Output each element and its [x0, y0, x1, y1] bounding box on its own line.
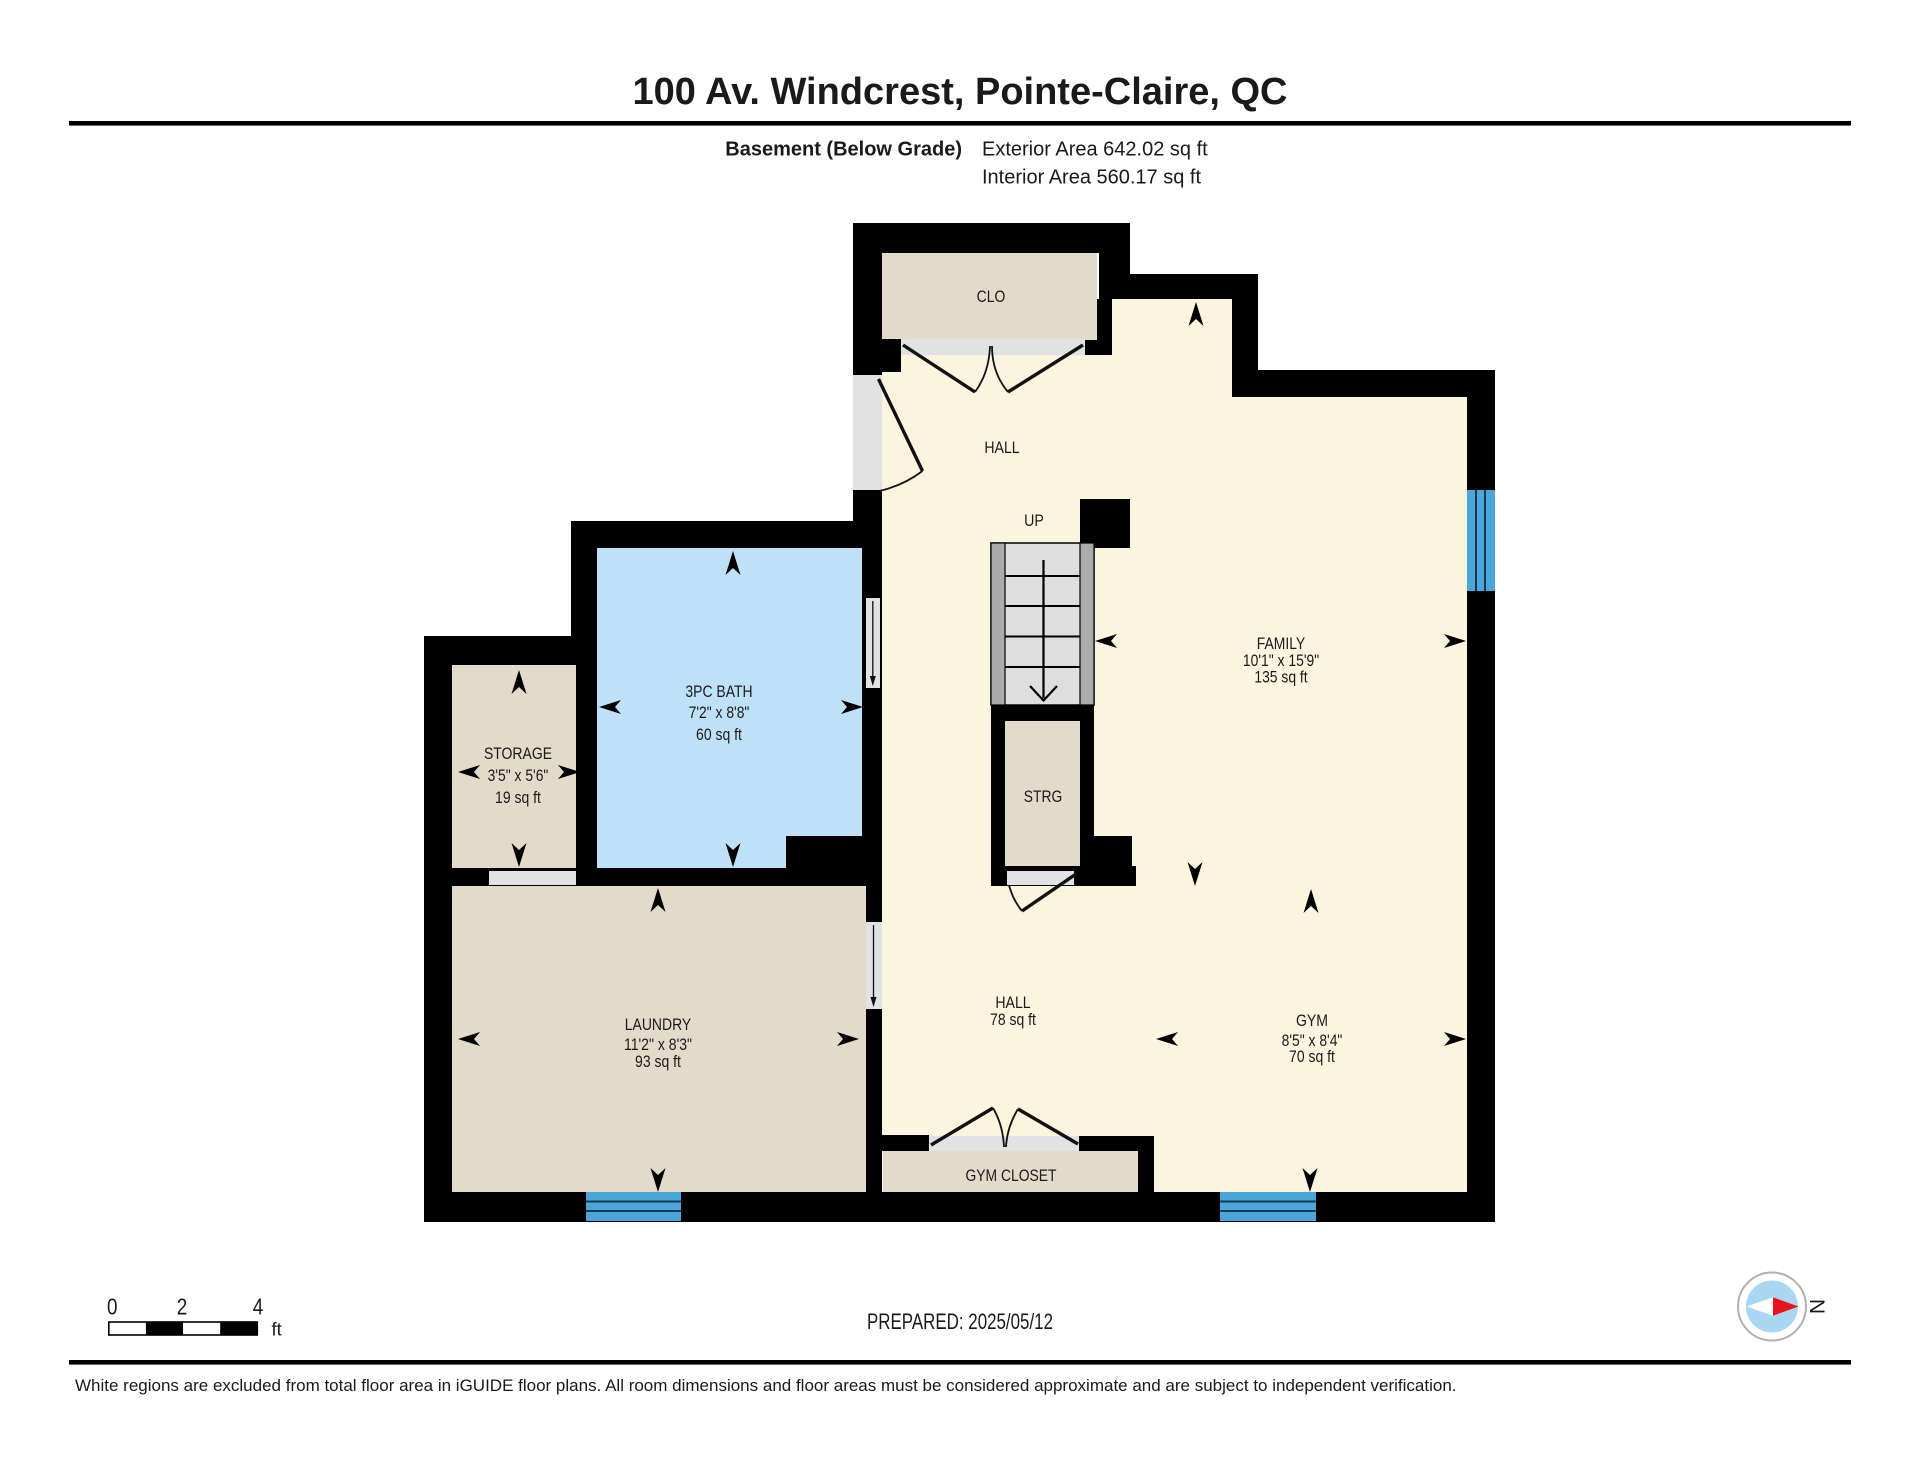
svg-text:GYM CLOSET: GYM CLOSET [966, 1166, 1057, 1185]
svg-text:4: 4 [253, 1294, 264, 1320]
svg-text:ft: ft [272, 1318, 282, 1339]
svg-text:2: 2 [177, 1294, 188, 1320]
svg-text:70 sq ft: 70 sq ft [1289, 1047, 1335, 1066]
svg-text:STORAGE: STORAGE [484, 744, 552, 763]
svg-text:LAUNDRY: LAUNDRY [625, 1015, 691, 1034]
svg-text:60 sq ft: 60 sq ft [696, 725, 742, 744]
svg-text:White regions are excluded fro: White regions are excluded from total fl… [75, 1376, 1457, 1395]
svg-text:N: N [1805, 1299, 1828, 1314]
svg-text:3'5" x 5'6": 3'5" x 5'6" [488, 766, 549, 785]
svg-text:3PC BATH: 3PC BATH [685, 682, 752, 701]
svg-text:Interior Area 560.17 sq ft: Interior Area 560.17 sq ft [982, 167, 1201, 189]
svg-text:HALL: HALL [984, 438, 1019, 457]
svg-text:19 sq ft: 19 sq ft [495, 788, 541, 807]
svg-text:Exterior Area 642.02 sq ft: Exterior Area 642.02 sq ft [982, 139, 1208, 161]
svg-text:Basement (Below Grade): Basement (Below Grade) [725, 139, 962, 161]
svg-text:78 sq ft: 78 sq ft [990, 1010, 1036, 1029]
svg-text:GYM: GYM [1296, 1011, 1328, 1030]
svg-text:PREPARED: 2025/05/12: PREPARED: 2025/05/12 [867, 1309, 1053, 1334]
svg-text:CLO: CLO [977, 287, 1006, 306]
svg-text:0: 0 [107, 1294, 118, 1320]
svg-text:135 sq ft: 135 sq ft [1254, 668, 1308, 687]
svg-text:UP: UP [1024, 511, 1044, 530]
svg-text:93 sq ft: 93 sq ft [635, 1052, 681, 1071]
svg-text:STRG: STRG [1024, 787, 1063, 806]
svg-text:100 Av. Windcrest, Pointe-Clai: 100 Av. Windcrest, Pointe-Claire, QC [633, 71, 1288, 113]
svg-text:7'2" x 8'8": 7'2" x 8'8" [689, 703, 750, 722]
